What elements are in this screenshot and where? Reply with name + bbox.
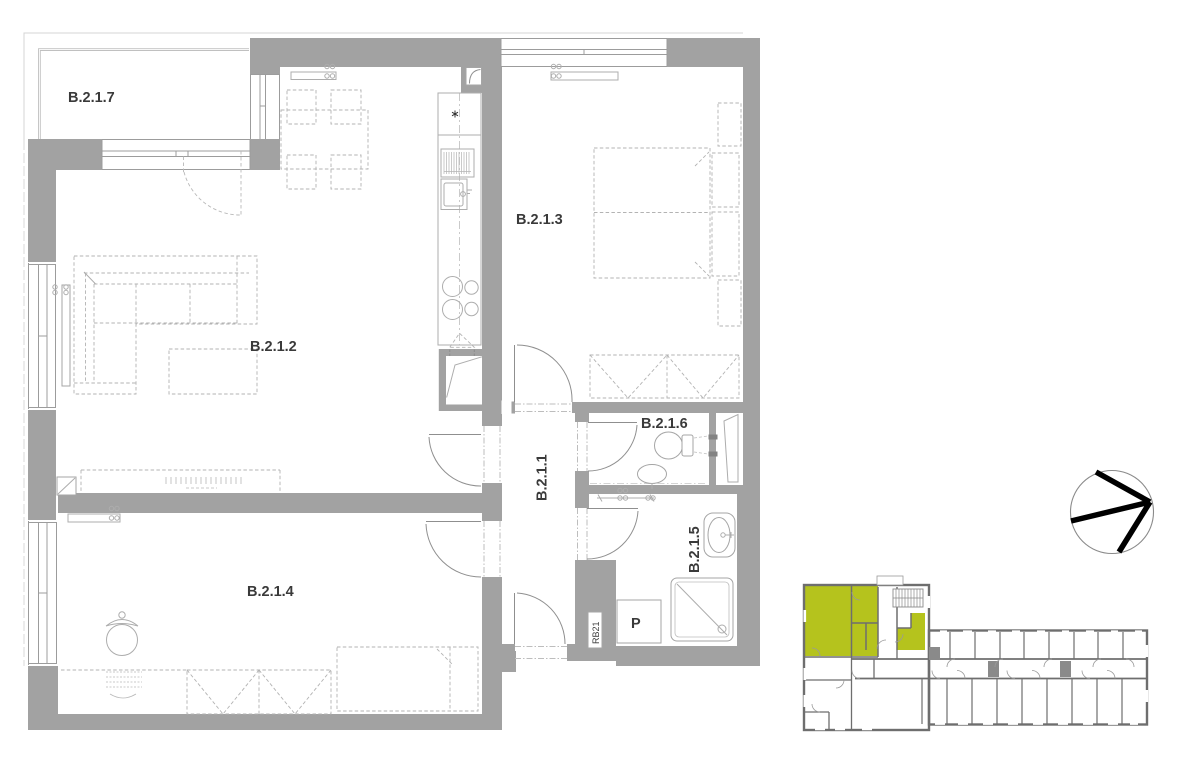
svg-text:RB21: RB21 [591, 621, 601, 644]
svg-text:B.2.1.1: B.2.1.1 [535, 454, 551, 501]
svg-text:B.2.1.5: B.2.1.5 [687, 526, 703, 573]
svg-text:B.2.1.4: B.2.1.4 [247, 584, 294, 600]
svg-text:P: P [631, 616, 641, 632]
svg-text:B.2.1.2: B.2.1.2 [250, 339, 297, 355]
svg-text:B.2.1.3: B.2.1.3 [516, 212, 563, 228]
svg-text:B.2.1.7: B.2.1.7 [68, 90, 115, 106]
svg-text:B.2.1.6: B.2.1.6 [641, 416, 688, 432]
